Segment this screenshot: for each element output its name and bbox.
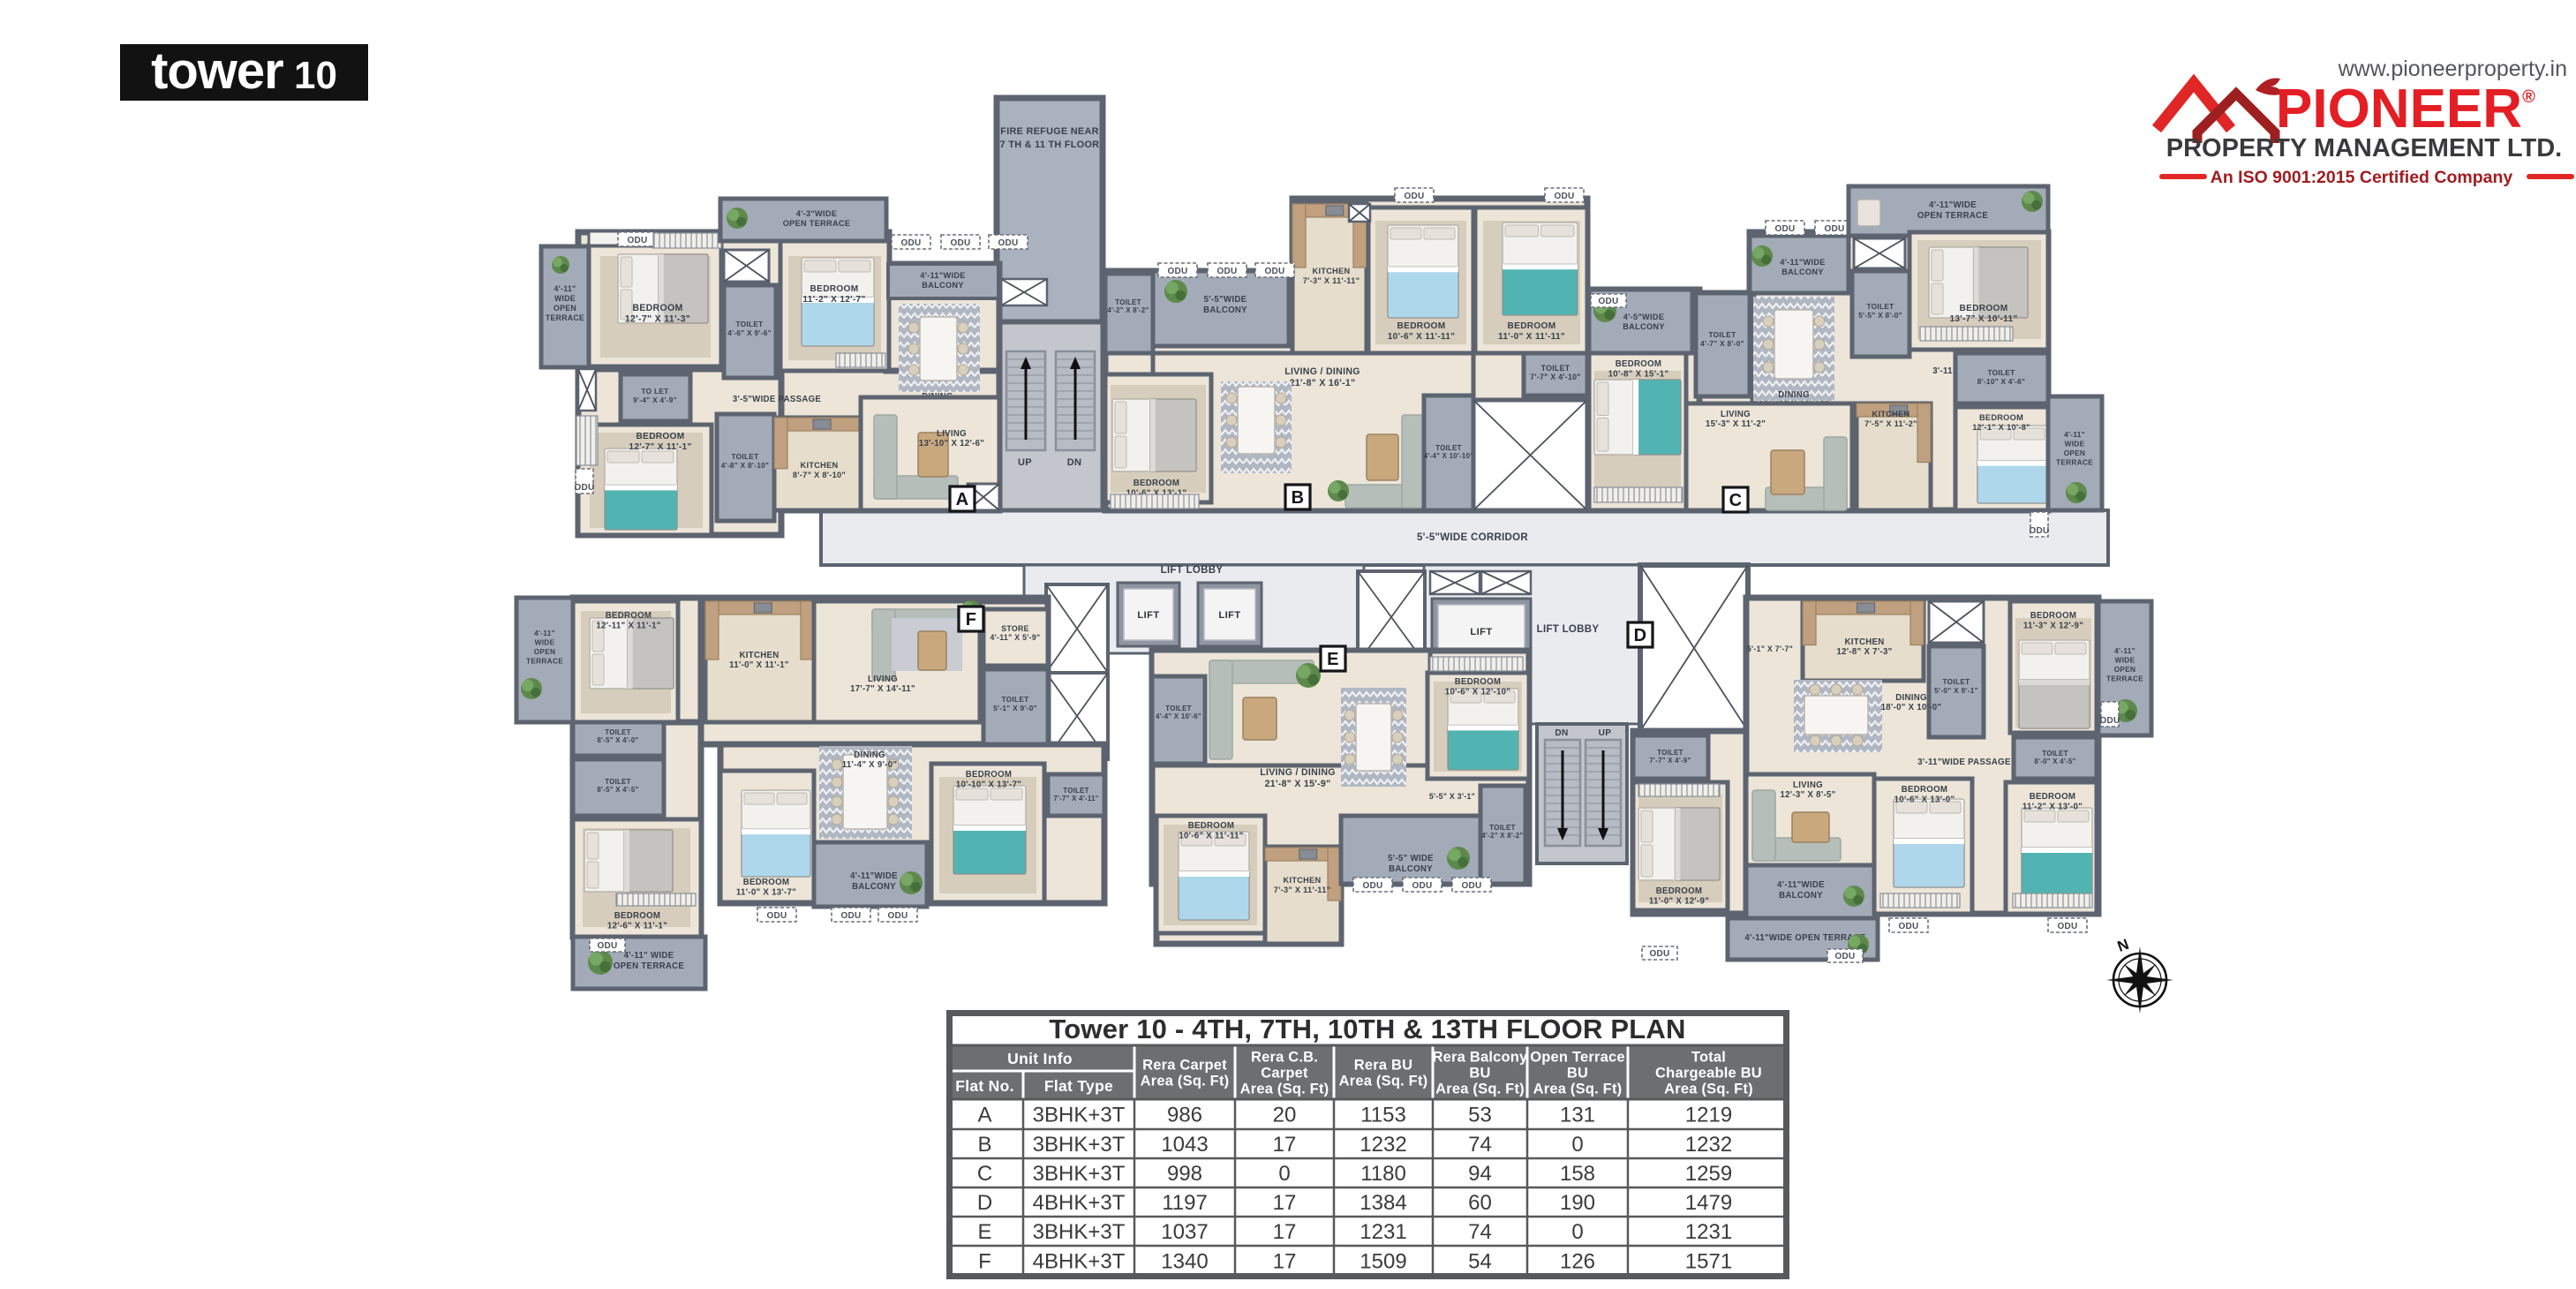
svg-text:126: 126: [1560, 1250, 1595, 1274]
svg-text:LIVING: LIVING: [868, 675, 898, 684]
svg-text:7'-7" X 4'-9": 7'-7" X 4'-9": [1649, 757, 1691, 765]
svg-text:986: 986: [1167, 1104, 1202, 1127]
svg-text:BALCONY: BALCONY: [1623, 322, 1665, 331]
svg-text:10'-6" X 11'-11": 10'-6" X 11'-11": [1179, 832, 1243, 841]
svg-text:LIFT: LIFT: [1137, 610, 1159, 621]
svg-text:ODU: ODU: [1649, 949, 1669, 959]
svg-text:11'-4" X 9'-0": 11'-4" X 9'-0": [842, 760, 898, 770]
svg-text:LIVING: LIVING: [1793, 780, 1823, 790]
svg-text:TOILET: TOILET: [1987, 369, 2015, 377]
svg-text:OPEN TERRACE: OPEN TERRACE: [1917, 211, 1989, 221]
svg-text:12'-1" X 10'-8": 12'-1" X 10'-8": [1972, 423, 2030, 432]
svg-text:Area (Sq. Ft): Area (Sq. Ft): [1141, 1074, 1230, 1089]
svg-text:5'-1" X 7'-7": 5'-1" X 7'-7": [1747, 644, 1793, 653]
svg-text:BEDROOM: BEDROOM: [1455, 677, 1502, 687]
svg-text:4'-11": 4'-11": [534, 629, 555, 637]
svg-text:LIVING / DINING: LIVING / DINING: [1284, 366, 1360, 377]
svg-text:4'-8" X 8'-10": 4'-8" X 8'-10": [721, 462, 770, 470]
svg-text:4'-11": 4'-11": [554, 284, 576, 293]
svg-text:11'-0" X 13'-7": 11'-0" X 13'-7": [736, 888, 796, 898]
svg-text:11'-0" X 11'-11": 11'-0" X 11'-11": [1498, 332, 1565, 342]
svg-text:1384: 1384: [1360, 1191, 1406, 1215]
svg-text:ODU: ODU: [1898, 922, 1918, 931]
svg-text:OPEN: OPEN: [534, 648, 556, 656]
svg-text:TOILET: TOILET: [1489, 824, 1515, 832]
svg-text:ODU: ODU: [887, 911, 908, 921]
svg-text:10'-6" X 11'-11": 10'-6" X 11'-11": [1388, 332, 1456, 342]
svg-text:BEDROOM: BEDROOM: [1616, 359, 1662, 369]
svg-text:5'-0" X 9'-1": 5'-0" X 9'-1": [1934, 687, 1978, 695]
svg-text:18'-0" X 10'-0": 18'-0" X 10'-0": [1881, 703, 1942, 712]
svg-text:Tower 10 - 4TH, 7TH, 10TH & 13: Tower 10 - 4TH, 7TH, 10TH & 13TH FLOOR P…: [1049, 1014, 1685, 1044]
svg-text:WIDE: WIDE: [2065, 441, 2085, 449]
svg-text:4'-7" X 8'-0": 4'-7" X 8'-0": [1700, 340, 1744, 348]
svg-text:131: 131: [1560, 1104, 1595, 1127]
svg-text:Area (Sq. Ft): Area (Sq. Ft): [1664, 1082, 1753, 1097]
svg-text:1197: 1197: [1162, 1191, 1208, 1215]
svg-text:BEDROOM: BEDROOM: [1902, 785, 1948, 795]
svg-text:ODU: ODU: [627, 236, 647, 245]
svg-text:0: 0: [1278, 1162, 1290, 1186]
svg-text:Total: Total: [1691, 1050, 1726, 1066]
svg-text:1232: 1232: [1360, 1133, 1406, 1157]
svg-text:10'-8" X 15'-1": 10'-8" X 15'-1": [1608, 370, 1669, 380]
svg-text:TOILET: TOILET: [1063, 787, 1088, 795]
svg-text:3BHK+3T: 3BHK+3T: [1033, 1104, 1126, 1127]
svg-text:D: D: [977, 1191, 992, 1215]
svg-text:12'-6" X 11'-1": 12'-6" X 11'-1": [607, 922, 667, 931]
svg-text:BU: BU: [1567, 1066, 1588, 1082]
svg-text:LIFT LOBBY: LIFT LOBBY: [1161, 565, 1224, 576]
svg-text:190: 190: [1560, 1191, 1595, 1215]
svg-text:60: 60: [1468, 1191, 1492, 1215]
svg-text:TOILET: TOILET: [1708, 331, 1736, 339]
svg-text:BEDROOM: BEDROOM: [743, 878, 790, 887]
svg-text:4'-6" X 9'-6": 4'-6" X 9'-6": [727, 329, 772, 337]
svg-text:TERRACE: TERRACE: [546, 313, 584, 322]
svg-text:8'-10" X 4'-6": 8'-10" X 4'-6": [1977, 378, 2026, 386]
svg-text:KITCHEN: KITCHEN: [1313, 267, 1351, 275]
svg-text:BALCONY: BALCONY: [1203, 305, 1247, 315]
svg-text:5'-5" X 8'-0": 5'-5" X 8'-0": [1858, 312, 1902, 320]
svg-text:Area (Sq. Ft): Area (Sq. Ft): [1533, 1082, 1623, 1097]
svg-text:C: C: [1729, 491, 1743, 510]
svg-text:TERRACE: TERRACE: [2056, 459, 2093, 467]
svg-text:OPEN TERRACE: OPEN TERRACE: [783, 219, 851, 228]
svg-text:53: 53: [1468, 1104, 1492, 1127]
svg-text:12'-7" X 11'-1": 12'-7" X 11'-1": [629, 442, 691, 452]
svg-text:ODU: ODU: [1404, 192, 1424, 201]
svg-text:5'-5"WIDE: 5'-5"WIDE: [1204, 295, 1247, 305]
svg-text:3'-5"WIDE PASSAGE: 3'-5"WIDE PASSAGE: [733, 395, 822, 404]
svg-text:8'-0" X 4'-5": 8'-0" X 4'-5": [2034, 758, 2075, 765]
svg-text:BALCONY: BALCONY: [1389, 864, 1433, 874]
svg-text:B: B: [977, 1133, 991, 1157]
svg-text:DN: DN: [1555, 728, 1568, 738]
svg-text:D: D: [1634, 626, 1647, 645]
svg-text:DINING: DINING: [1895, 693, 1927, 703]
svg-text:54: 54: [1468, 1250, 1492, 1274]
svg-text:4'-4" X 10'-6": 4'-4" X 10'-6": [1156, 712, 1201, 720]
svg-text:7'-7" X 4'-10": 7'-7" X 4'-10": [1530, 373, 1580, 381]
svg-text:20: 20: [1273, 1104, 1297, 1127]
svg-text:8'-5" X 4'-5": 8'-5" X 4'-5": [597, 786, 638, 794]
svg-text:17'-7" X 14'-11": 17'-7" X 14'-11": [850, 684, 915, 694]
svg-text:OPEN TERRACE: OPEN TERRACE: [614, 961, 685, 971]
svg-text:UP: UP: [1018, 457, 1032, 468]
svg-text:4'-11" X 5'-9": 4'-11" X 5'-9": [990, 633, 1041, 642]
svg-text:ODU: ODU: [1412, 881, 1432, 891]
svg-text:7 TH & 11 TH FLOOR: 7 TH & 11 TH FLOOR: [1000, 139, 1100, 150]
svg-text:1153: 1153: [1360, 1104, 1406, 1127]
svg-text:17: 17: [1273, 1250, 1297, 1274]
svg-text:C: C: [977, 1162, 992, 1186]
svg-text:10'-6" X 12'-10": 10'-6" X 12'-10": [1445, 688, 1510, 697]
svg-text:ODU: ODU: [1216, 267, 1237, 276]
svg-text:BEDROOM: BEDROOM: [636, 432, 685, 441]
svg-text:BEDROOM: BEDROOM: [966, 770, 1013, 780]
svg-text:BEDROOM: BEDROOM: [1960, 304, 2008, 313]
svg-text:ODU: ODU: [1774, 224, 1795, 234]
svg-text:Flat No.: Flat No.: [955, 1077, 1014, 1095]
svg-text:1043: 1043: [1161, 1133, 1208, 1157]
svg-text:3'-11"WIDE PASSAGE: 3'-11"WIDE PASSAGE: [1917, 758, 2011, 767]
svg-text:1231: 1231: [1360, 1220, 1406, 1244]
svg-text:STORE: STORE: [1001, 624, 1028, 633]
svg-text:KITCHEN: KITCHEN: [1844, 637, 1884, 647]
svg-text:4'-11"WIDE: 4'-11"WIDE: [1929, 200, 1977, 210]
svg-text:Rera Carpet: Rera Carpet: [1142, 1058, 1227, 1074]
svg-text:7'-7" X 4'-11": 7'-7" X 4'-11": [1053, 795, 1098, 803]
svg-text:8'-7" X 8'-10": 8'-7" X 8'-10": [793, 471, 846, 479]
svg-text:4'-11": 4'-11": [2114, 647, 2135, 655]
svg-text:ODU: ODU: [1554, 192, 1574, 201]
svg-text:A: A: [977, 1104, 991, 1127]
svg-text:1509: 1509: [1360, 1250, 1406, 1274]
svg-text:OPEN: OPEN: [554, 304, 576, 313]
svg-text:TOILET: TOILET: [1435, 444, 1461, 452]
svg-text:ODU: ODU: [1264, 267, 1284, 276]
svg-text:158: 158: [1560, 1162, 1595, 1186]
svg-text:Rera BU: Rera BU: [1354, 1058, 1413, 1074]
svg-text:11'-0" X 12'-9": 11'-0" X 12'-9": [1649, 897, 1709, 907]
svg-text:TOILET: TOILET: [1942, 678, 1970, 686]
svg-text:TERRACE: TERRACE: [2106, 675, 2143, 683]
svg-text:B: B: [1292, 488, 1305, 508]
svg-text:LIFT LOBBY: LIFT LOBBY: [1537, 624, 1600, 635]
svg-text:0: 0: [1571, 1220, 1583, 1244]
svg-text:TOILET: TOILET: [1165, 705, 1191, 712]
svg-text:ODU: ODU: [1362, 881, 1382, 891]
svg-text:KITCHEN: KITCHEN: [739, 651, 779, 660]
svg-text:1479: 1479: [1685, 1191, 1732, 1215]
svg-text:1259: 1259: [1685, 1162, 1732, 1186]
svg-text:ODU: ODU: [1461, 881, 1481, 891]
svg-text:13'-10" X 12'-6": 13'-10" X 12'-6": [919, 439, 984, 449]
svg-text:BEDROOM: BEDROOM: [614, 911, 661, 921]
svg-text:Rera C.B.: Rera C.B.: [1251, 1050, 1318, 1066]
svg-text:LIVING / DINING: LIVING / DINING: [1260, 767, 1336, 778]
svg-text:Flat Type: Flat Type: [1044, 1077, 1113, 1095]
svg-text:WIDE: WIDE: [2115, 657, 2135, 665]
svg-text:TOILET: TOILET: [605, 778, 630, 786]
svg-text:BEDROOM: BEDROOM: [1397, 321, 1446, 331]
svg-text:ODU: ODU: [2029, 526, 2049, 536]
svg-text:ODU: ODU: [597, 941, 617, 951]
svg-text:BEDROOM: BEDROOM: [2030, 792, 2076, 802]
svg-text:13'-7" X 10'-11": 13'-7" X 10'-11": [1949, 314, 2017, 324]
svg-text:TOILET: TOILET: [1115, 298, 1141, 306]
svg-text:10'-6" X 13'-0": 10'-6" X 13'-0": [1894, 795, 1955, 805]
svg-text:BEDROOM: BEDROOM: [1656, 886, 1703, 896]
svg-text:DINING: DINING: [1778, 390, 1810, 400]
svg-text:TOILET: TOILET: [1866, 303, 1894, 311]
svg-text:TERRACE: TERRACE: [526, 658, 563, 666]
svg-text:ODU: ODU: [1824, 224, 1844, 234]
svg-text:E: E: [1327, 650, 1339, 669]
svg-text:BEDROOM: BEDROOM: [810, 284, 859, 294]
svg-text:Area (Sq. Ft): Area (Sq. Ft): [1240, 1082, 1329, 1097]
svg-text:UP: UP: [1599, 728, 1612, 738]
svg-text:4'-11"WIDE: 4'-11"WIDE: [1780, 258, 1825, 267]
svg-text:LIFT: LIFT: [1470, 627, 1492, 637]
svg-text:Rera Balcony: Rera Balcony: [1433, 1050, 1528, 1066]
svg-text:12'-7" X 11'-3": 12'-7" X 11'-3": [625, 314, 690, 325]
svg-text:998: 998: [1167, 1162, 1202, 1186]
svg-text:0: 0: [1571, 1133, 1583, 1157]
svg-text:ODU: ODU: [1834, 952, 1855, 961]
svg-text:21'-8" X 15'-9": 21'-8" X 15'-9": [1265, 779, 1331, 789]
svg-text:10'-10" X 13'-7": 10'-10" X 13'-7": [956, 780, 1021, 790]
svg-text:KITCHEN: KITCHEN: [1872, 410, 1910, 418]
svg-text:11'-3" X 12'-9": 11'-3" X 12'-9": [2023, 622, 2083, 631]
svg-text:5'-5" WIDE: 5'-5" WIDE: [1388, 854, 1434, 863]
svg-text:3BHK+3T: 3BHK+3T: [1033, 1162, 1126, 1186]
svg-text:ODU: ODU: [574, 483, 594, 493]
svg-text:TO LET: TO LET: [641, 388, 668, 396]
svg-text:1231: 1231: [1685, 1220, 1732, 1244]
svg-text:TOILET: TOILET: [2042, 750, 2068, 758]
svg-text:1180: 1180: [1360, 1162, 1406, 1186]
svg-text:12'-11" X 11'-1": 12'-11" X 11'-1": [596, 622, 660, 631]
svg-text:17: 17: [1273, 1133, 1297, 1157]
svg-text:4'-11"WIDE OPEN TERRACE: 4'-11"WIDE OPEN TERRACE: [1744, 933, 1865, 943]
svg-text:E: E: [977, 1220, 991, 1244]
svg-text:4'-11": 4'-11": [2064, 431, 2085, 439]
svg-text:BALCONY: BALCONY: [852, 882, 896, 892]
svg-text:LIVING: LIVING: [1721, 410, 1751, 419]
svg-text:1037: 1037: [1161, 1220, 1208, 1244]
svg-text:ODU: ODU: [766, 911, 787, 921]
svg-text:5'-1" X 9'-0": 5'-1" X 9'-0": [993, 705, 1037, 712]
svg-text:21'-8" X 16'-1": 21'-8" X 16'-1": [1290, 378, 1356, 388]
svg-text:4'-4" X 10'-10": 4'-4" X 10'-10": [1424, 452, 1473, 460]
svg-text:Area (Sq. Ft): Area (Sq. Ft): [1339, 1074, 1428, 1089]
svg-text:TOILET: TOILET: [735, 320, 763, 328]
svg-text:4'-11"WIDE: 4'-11"WIDE: [920, 271, 965, 280]
svg-text:7'-5" X 11'-2": 7'-5" X 11'-2": [1864, 419, 1917, 428]
svg-text:F: F: [966, 610, 977, 629]
svg-text:94: 94: [1468, 1162, 1492, 1186]
svg-text:3BHK+3T: 3BHK+3T: [1033, 1220, 1126, 1244]
svg-text:17: 17: [1273, 1220, 1297, 1244]
svg-text:4'-3"WIDE: 4'-3"WIDE: [796, 209, 838, 218]
svg-text:11'-0" X 11'-1": 11'-0" X 11'-1": [729, 660, 789, 670]
svg-text:LIVING: LIVING: [937, 429, 967, 439]
svg-text:Unit Info: Unit Info: [1007, 1050, 1073, 1067]
svg-text:KITCHEN: KITCHEN: [801, 461, 839, 470]
svg-text:17: 17: [1273, 1191, 1297, 1215]
svg-text:DN: DN: [1067, 457, 1082, 468]
svg-text:4'-2" X 8'-2": 4'-2" X 8'-2": [1481, 832, 1523, 840]
svg-text:4BHK+3T: 4BHK+3T: [1033, 1250, 1126, 1274]
svg-text:N: N: [2115, 936, 2131, 955]
svg-text:74: 74: [1468, 1220, 1492, 1244]
svg-text:5'-5"WIDE CORRIDOR: 5'-5"WIDE CORRIDOR: [1417, 532, 1528, 543]
svg-text:4'-11"WIDE: 4'-11"WIDE: [1777, 880, 1825, 890]
svg-text:Carpet: Carpet: [1261, 1066, 1308, 1082]
svg-text:Chargeable BU: Chargeable BU: [1655, 1066, 1762, 1082]
svg-text:4'-11"WIDE: 4'-11"WIDE: [850, 871, 898, 881]
svg-text:BEDROOM: BEDROOM: [1188, 821, 1235, 831]
svg-text:74: 74: [1468, 1133, 1492, 1157]
svg-text:4'-5"WIDE: 4'-5"WIDE: [1623, 313, 1665, 321]
svg-text:11'-2" X 13'-0": 11'-2" X 13'-0": [2022, 803, 2083, 812]
svg-text:BEDROOM: BEDROOM: [1508, 321, 1556, 331]
svg-text:BU: BU: [1469, 1066, 1490, 1082]
svg-text:1219: 1219: [1685, 1104, 1732, 1127]
svg-text:BEDROOM: BEDROOM: [606, 611, 652, 621]
svg-text:8'-5" X 4'-0": 8'-5" X 4'-0": [597, 736, 638, 744]
svg-text:ODU: ODU: [2099, 716, 2120, 726]
svg-text:ODU: ODU: [1598, 297, 1618, 306]
svg-text:4BHK+3T: 4BHK+3T: [1033, 1191, 1126, 1215]
svg-text:Area (Sq. Ft): Area (Sq. Ft): [1435, 1082, 1525, 1097]
svg-text:OPEN: OPEN: [2114, 666, 2136, 674]
svg-text:BEDROOM: BEDROOM: [2030, 611, 2077, 621]
svg-text:A: A: [956, 490, 969, 509]
svg-text:ODU: ODU: [1167, 267, 1187, 276]
svg-text:ODU: ODU: [950, 238, 970, 248]
svg-text:F: F: [978, 1250, 991, 1274]
svg-text:FIRE REFUGE NEAR: FIRE REFUGE NEAR: [1000, 126, 1098, 137]
svg-text:TOILET: TOILET: [1657, 749, 1683, 757]
svg-text:15'-3" X 11'-2": 15'-3" X 11'-2": [1706, 419, 1766, 429]
svg-text:Open Terrace: Open Terrace: [1530, 1050, 1625, 1066]
svg-text:WIDE: WIDE: [554, 294, 576, 303]
svg-text:TOILET: TOILET: [1541, 364, 1570, 373]
svg-text:1340: 1340: [1161, 1250, 1208, 1274]
svg-text:9'-4" X 4'-9": 9'-4" X 4'-9": [633, 396, 677, 404]
svg-text:LIFT: LIFT: [1218, 610, 1240, 621]
svg-text:1571: 1571: [1685, 1250, 1732, 1274]
svg-text:3BHK+3T: 3BHK+3T: [1033, 1133, 1126, 1157]
svg-text:BALCONY: BALCONY: [1779, 891, 1823, 901]
svg-text:TOILET: TOILET: [731, 453, 758, 461]
svg-text:TOILET: TOILET: [1001, 696, 1028, 704]
svg-text:DINING: DINING: [854, 750, 885, 760]
svg-text:BALCONY: BALCONY: [1781, 268, 1824, 276]
svg-text:BALCONY: BALCONY: [922, 281, 964, 290]
svg-text:11'-2" X 12'-7": 11'-2" X 12'-7": [802, 295, 865, 305]
svg-text:1232: 1232: [1685, 1133, 1732, 1157]
svg-text:TOILET: TOILET: [605, 728, 630, 736]
svg-text:WIDE: WIDE: [535, 639, 555, 647]
svg-text:ODU: ODU: [998, 238, 1018, 248]
svg-text:OPEN: OPEN: [2064, 449, 2086, 457]
svg-text:4'-2" X 8'-2": 4'-2" X 8'-2": [1107, 306, 1149, 314]
svg-text:KITCHEN: KITCHEN: [1284, 876, 1322, 885]
svg-text:5'-5" X 3'-1": 5'-5" X 3'-1": [1429, 792, 1475, 801]
svg-text:ODU: ODU: [900, 238, 921, 248]
svg-text:12'-3" X 8'-5": 12'-3" X 8'-5": [1780, 790, 1835, 800]
svg-text:BEDROOM: BEDROOM: [1134, 479, 1180, 488]
svg-text:12'-8" X 7'-3": 12'-8" X 7'-3": [1836, 647, 1892, 657]
svg-text:ODU: ODU: [2057, 922, 2077, 931]
svg-text:7'-3" X 11'-11": 7'-3" X 11'-11": [1303, 276, 1360, 285]
svg-text:7'-3" X 11'-11": 7'-3" X 11'-11": [1274, 886, 1331, 894]
svg-text:BEDROOM: BEDROOM: [1979, 413, 2023, 422]
svg-text:ODU: ODU: [840, 911, 861, 921]
svg-text:4'-11" WIDE: 4'-11" WIDE: [624, 951, 674, 961]
svg-text:BEDROOM: BEDROOM: [632, 303, 682, 313]
